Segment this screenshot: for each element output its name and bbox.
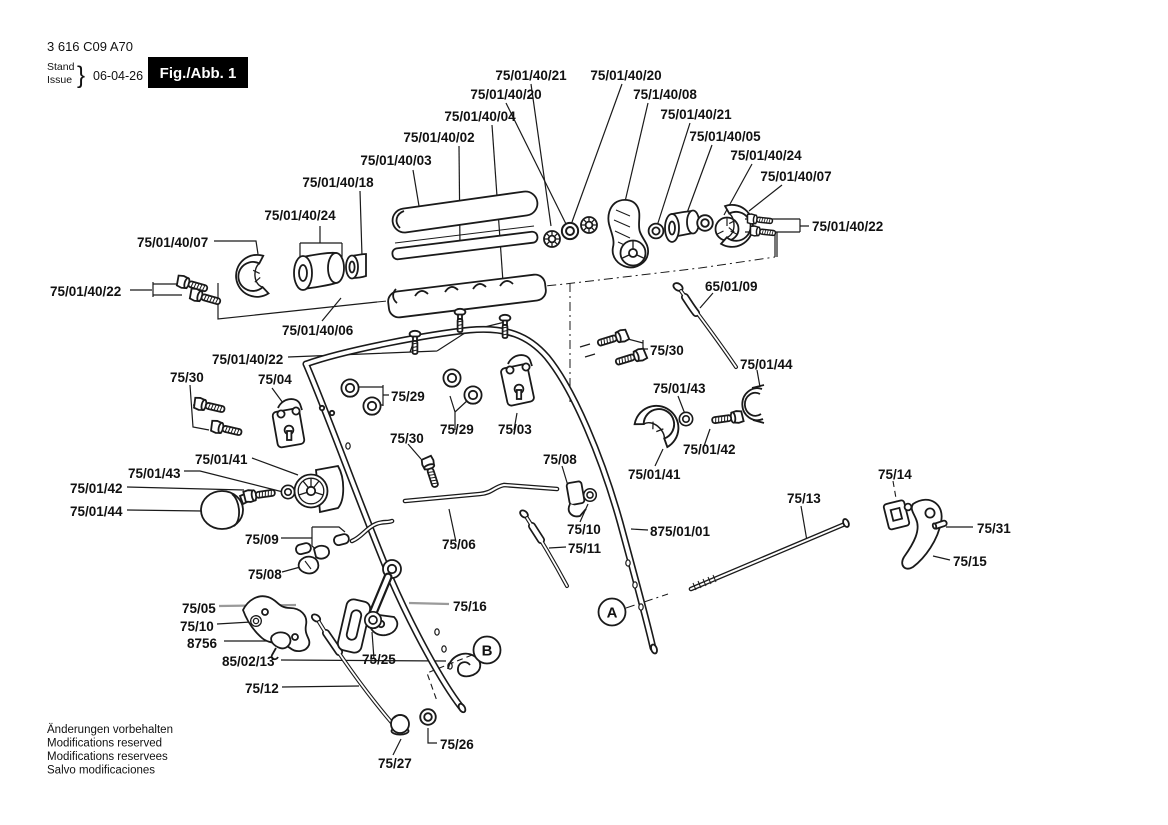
flange-nut	[443, 369, 460, 386]
part-label: 75/30	[650, 343, 684, 358]
washer-75-01-43	[281, 485, 294, 498]
frame-bolt	[420, 455, 441, 488]
part-label: 75/08	[543, 452, 577, 467]
clip-75-01-44	[742, 385, 764, 423]
part-label: 75/01/42	[70, 481, 123, 496]
part-label: 75/01/41	[195, 452, 248, 467]
clamp-bolt	[750, 226, 776, 238]
footer-note: Änderungen vorbehalten	[47, 724, 173, 736]
nut-75-25	[365, 612, 381, 629]
part-labels: 75/01/40/2175/01/40/2075/01/40/2075/1/40…	[50, 68, 1011, 771]
washer	[697, 215, 713, 231]
washer	[649, 224, 664, 239]
star-washer	[581, 217, 597, 233]
part-label: 75/01/40/22	[812, 219, 883, 234]
tube-end-cap	[457, 703, 466, 714]
part-label: 75/09	[245, 532, 279, 547]
part-label: 8756	[187, 636, 218, 651]
star-washer	[544, 231, 560, 247]
frame-bolt	[210, 420, 243, 439]
washer-75-10	[584, 489, 597, 502]
part-label: 75/30	[390, 431, 424, 446]
part-label: 75/01/40/03	[360, 153, 432, 168]
clamp-bolt	[747, 214, 773, 226]
part-label: 75/01/40/18	[302, 175, 374, 190]
clamp-75-04	[272, 399, 305, 448]
part-label: 75/29	[440, 422, 474, 437]
footer-note: Modifications reservees	[47, 751, 168, 763]
footer-notes: Änderungen vorbehalten Modifications res…	[47, 724, 173, 777]
construction-lines	[218, 233, 897, 701]
stand-label: Stand	[47, 61, 75, 73]
part-label: 75/29	[391, 389, 425, 404]
part-label: 75/05	[182, 601, 216, 616]
part-label: 75/31	[977, 521, 1011, 536]
part-label: 75/12	[245, 681, 279, 696]
part-label: 75/01/40/07	[760, 169, 831, 184]
frame-bolt	[596, 329, 629, 350]
title-block: 3 616 C09 A70 Stand Issue } 06-04-26 Fig…	[47, 39, 248, 89]
part-label: 75/01/40/20	[470, 87, 541, 102]
part-label: 75/01/40/21	[660, 107, 732, 122]
part-label: 75/01/40/05	[689, 129, 761, 144]
part-label: 75/01/40/06	[282, 323, 354, 338]
lower-ribbed-shell	[387, 273, 547, 318]
switch-rod-75-06	[405, 485, 557, 501]
cover-75-01-44	[201, 491, 251, 529]
issue-label: Issue	[47, 74, 72, 86]
part-label: 875/01/01	[650, 524, 711, 539]
pull-rod-75-13	[691, 518, 850, 590]
document-number: 3 616 C09 A70	[47, 39, 133, 54]
frame-bolt	[193, 397, 226, 416]
part-label: 75/01/40/07	[137, 235, 208, 250]
part-label: 75/08	[248, 567, 282, 582]
part-label: 75/06	[442, 537, 476, 552]
flange-nut	[341, 379, 358, 396]
part-label: 75/01/40/04	[444, 109, 516, 124]
pulley-75-01-41	[295, 466, 344, 512]
cap-nut-75-27	[391, 715, 409, 735]
part-label: 75/01/43	[128, 466, 181, 481]
part-label: 75/01/40/20	[590, 68, 661, 83]
part-label: 75/03	[498, 422, 532, 437]
part-label: 75/15	[953, 554, 987, 569]
brace-glyph: }	[77, 62, 85, 89]
part-label: 75/04	[258, 372, 292, 387]
callout-a: A	[599, 599, 626, 626]
part-label: 75/30	[170, 370, 204, 385]
part-label: 75/01/43	[653, 381, 706, 396]
part-label: 75/01/44	[70, 504, 123, 519]
frame-bolt	[614, 348, 647, 369]
flange-nut	[464, 386, 481, 403]
part-label: 75/01/40/24	[730, 148, 802, 163]
footer-note: Modifications reserved	[47, 738, 162, 750]
roller	[665, 211, 699, 243]
bushing-roller-set	[294, 253, 366, 290]
part-label: 75/01/40/22	[50, 284, 121, 299]
part-label: 75/26	[440, 737, 474, 752]
clamp-75-08	[566, 481, 586, 516]
part-label: 75/01/40/21	[495, 68, 567, 83]
part-label: 75/11	[568, 541, 602, 556]
parts-diagram-page: A B 3 616 C09 A70 Stand Issue } 06-04-26…	[0, 0, 1168, 825]
catch-75-14	[883, 500, 911, 530]
ring-75-10	[251, 616, 262, 627]
part-label: 75/01/40/02	[403, 130, 474, 145]
part-label: 75/10	[180, 619, 214, 634]
part-label: 75/01/42	[683, 442, 736, 457]
part-label: 75/13	[787, 491, 821, 506]
clamp-75-03	[500, 355, 534, 406]
part-label: 75/01/41	[628, 467, 681, 482]
part-label: 75/01/40/24	[264, 208, 336, 223]
part-label: 85/02/13	[222, 654, 275, 669]
pivot-bolt-75-01-42	[711, 410, 743, 426]
clamp-cup-75-01-41	[633, 397, 687, 448]
part-label: 75/27	[378, 756, 412, 771]
callout-b: B	[474, 637, 501, 664]
part-label: 75/1/40/08	[633, 87, 697, 102]
part-label: 75/10	[567, 522, 601, 537]
washer-75-01-43	[679, 412, 692, 425]
part-label: 65/01/09	[705, 279, 758, 294]
callout-a-label: A	[607, 605, 618, 622]
clip-75-08-left	[299, 557, 319, 574]
part-label: 75/25	[362, 652, 396, 667]
upper-shell-tube	[391, 190, 539, 234]
part-label: 75/16	[453, 599, 487, 614]
flange-nut	[363, 397, 380, 414]
left-clamp-cup	[233, 254, 268, 300]
tube-end-cap	[650, 644, 658, 654]
part-label: 75/01/44	[740, 357, 793, 372]
figure-label: Fig./Abb. 1	[160, 65, 237, 82]
issue-date: 06-04-26	[93, 69, 143, 83]
shell-screw	[410, 331, 421, 354]
grip-lever	[608, 200, 648, 268]
part-label: 75/01/40/22	[212, 352, 283, 367]
washer	[562, 223, 578, 239]
callout-b-label: B	[482, 643, 493, 660]
part-label: 75/14	[878, 467, 912, 482]
footer-note: Salvo modificaciones	[47, 765, 155, 777]
washer-75-26	[420, 709, 436, 725]
exploded-parts-drawing: A B 3 616 C09 A70 Stand Issue } 06-04-26…	[0, 0, 1168, 825]
